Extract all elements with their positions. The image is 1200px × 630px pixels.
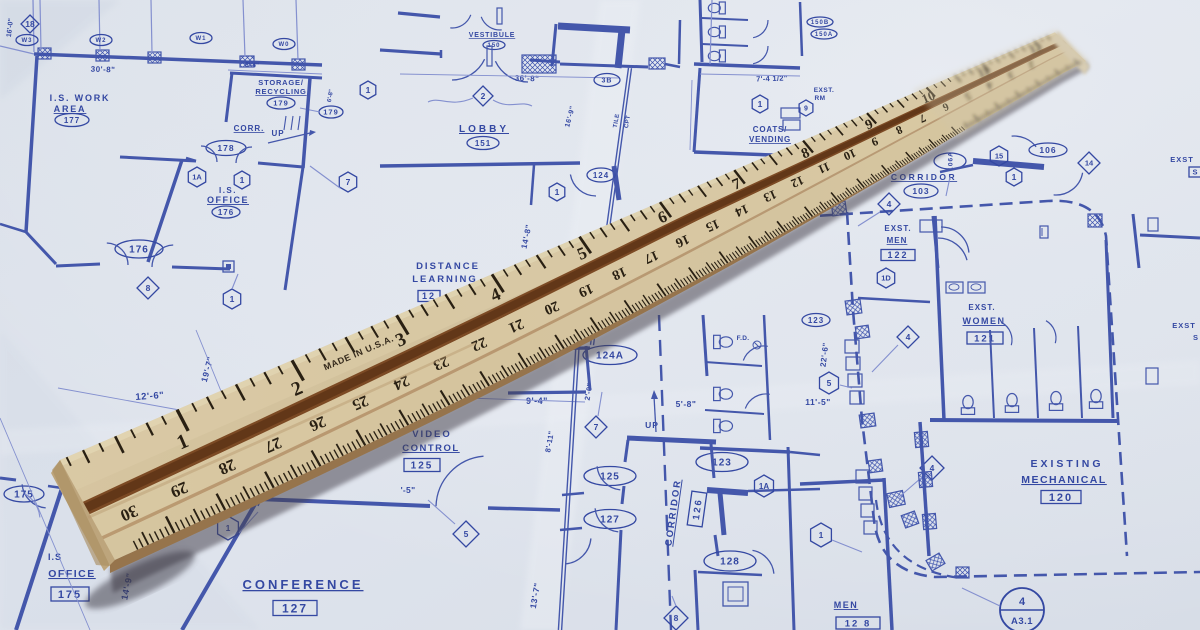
svg-text:123: 123 <box>712 458 732 469</box>
svg-text:EXISTING: EXISTING <box>1030 458 1103 470</box>
svg-text:9: 9 <box>804 106 808 113</box>
svg-text:WOMEN: WOMEN <box>963 316 1006 326</box>
svg-text:EXST: EXST <box>1170 155 1194 164</box>
svg-text:123: 123 <box>808 316 824 325</box>
svg-text:OFFICE: OFFICE <box>207 195 249 205</box>
svg-text:1: 1 <box>758 99 763 109</box>
svg-text:I.S: I.S <box>48 552 62 562</box>
svg-text:COATS/: COATS/ <box>753 125 787 134</box>
svg-text:S: S <box>1193 333 1199 342</box>
svg-text:AREA: AREA <box>54 104 87 114</box>
svg-text:8: 8 <box>674 613 679 623</box>
svg-text:W1: W1 <box>196 36 207 42</box>
svg-text:VENDING: VENDING <box>749 135 791 144</box>
svg-text:RECYCLING: RECYCLING <box>255 87 306 96</box>
svg-text:122: 122 <box>887 250 908 260</box>
svg-text:127: 127 <box>600 515 620 526</box>
svg-text:7: 7 <box>346 177 351 187</box>
svg-text:VESTIBULE: VESTIBULE <box>469 32 515 39</box>
svg-text:1: 1 <box>240 175 245 185</box>
svg-text:2: 2 <box>481 91 486 101</box>
svg-text:177: 177 <box>64 116 80 125</box>
svg-text:30'-8": 30'-8" <box>91 65 116 75</box>
svg-text:CONFERENCE: CONFERENCE <box>242 577 363 592</box>
svg-text:A3.1: A3.1 <box>1011 616 1033 627</box>
svg-text:121: 121 <box>974 333 996 344</box>
svg-text:CORR.: CORR. <box>234 124 265 133</box>
svg-text:EXST.: EXST. <box>884 224 911 233</box>
svg-text:106A: 106A <box>947 151 954 171</box>
svg-text:150A: 150A <box>815 32 833 38</box>
svg-text:UP: UP <box>645 420 659 430</box>
svg-text:EXST.: EXST. <box>814 87 835 94</box>
svg-text:MECHANICAL: MECHANICAL <box>1021 474 1107 486</box>
svg-text:124: 124 <box>593 171 609 180</box>
svg-text:1: 1 <box>366 85 371 95</box>
svg-text:4: 4 <box>1019 596 1026 608</box>
svg-text:1: 1 <box>230 294 235 304</box>
svg-text:STORAGE/: STORAGE/ <box>258 78 304 87</box>
svg-text:12 8: 12 8 <box>845 618 872 629</box>
svg-text:5: 5 <box>464 529 469 539</box>
svg-text:'-5": '-5" <box>401 485 416 495</box>
svg-text:MEN: MEN <box>834 600 859 610</box>
svg-text:11'-5": 11'-5" <box>805 397 831 407</box>
svg-text:MEN: MEN <box>887 236 908 245</box>
svg-text:14: 14 <box>1085 159 1094 168</box>
svg-text:120: 120 <box>1049 492 1073 504</box>
svg-text:178: 178 <box>217 143 234 153</box>
svg-text:127: 127 <box>282 601 308 615</box>
svg-text:W2: W2 <box>96 38 107 44</box>
svg-text:36'-8": 36'-8" <box>515 74 540 84</box>
svg-text:12'-6": 12'-6" <box>135 390 164 403</box>
svg-text:DISTANCE: DISTANCE <box>416 261 480 272</box>
svg-text:W3: W3 <box>22 38 33 44</box>
svg-text:18: 18 <box>25 19 35 29</box>
svg-text:125: 125 <box>411 461 434 472</box>
svg-text:4: 4 <box>887 199 892 209</box>
svg-text:3B: 3B <box>602 78 613 85</box>
svg-text:EXST.: EXST. <box>968 303 995 312</box>
svg-text:EXST: EXST <box>1172 321 1196 330</box>
svg-text:S: S <box>1192 168 1199 177</box>
svg-text:175: 175 <box>58 589 82 601</box>
svg-text:128: 128 <box>720 557 740 568</box>
svg-text:150B: 150B <box>811 20 829 26</box>
svg-text:1: 1 <box>555 187 560 197</box>
svg-text:176: 176 <box>129 245 149 256</box>
svg-text:4: 4 <box>906 332 911 342</box>
svg-text:1A: 1A <box>759 482 769 491</box>
svg-text:UP: UP <box>271 129 284 138</box>
svg-text:F.D.: F.D. <box>737 335 750 342</box>
svg-text:RM: RM <box>814 95 825 102</box>
svg-text:I.S. WORK: I.S. WORK <box>50 93 111 103</box>
svg-text:1: 1 <box>1012 172 1017 182</box>
svg-text:8: 8 <box>146 283 151 293</box>
svg-text:106: 106 <box>1039 145 1056 155</box>
svg-text:5'-8": 5'-8" <box>676 399 697 409</box>
svg-text:I.S.: I.S. <box>219 186 237 195</box>
svg-text:151: 151 <box>475 139 491 148</box>
svg-text:LOBBY: LOBBY <box>459 124 509 135</box>
svg-text:W0: W0 <box>279 42 290 48</box>
svg-text:LEARNING: LEARNING <box>412 274 478 285</box>
svg-text:176: 176 <box>218 208 234 217</box>
svg-text:7: 7 <box>594 422 599 432</box>
svg-text:1D: 1D <box>881 274 891 283</box>
svg-text:1: 1 <box>819 530 824 540</box>
svg-text:179: 179 <box>323 108 339 117</box>
svg-text:1A: 1A <box>192 173 202 182</box>
svg-text:15: 15 <box>995 152 1003 161</box>
svg-text:179: 179 <box>273 99 289 108</box>
svg-text:OFFICE: OFFICE <box>48 568 96 580</box>
svg-text:103: 103 <box>912 186 929 196</box>
svg-text:8'-4": 8'-4" <box>245 62 259 69</box>
svg-text:5: 5 <box>827 378 832 388</box>
